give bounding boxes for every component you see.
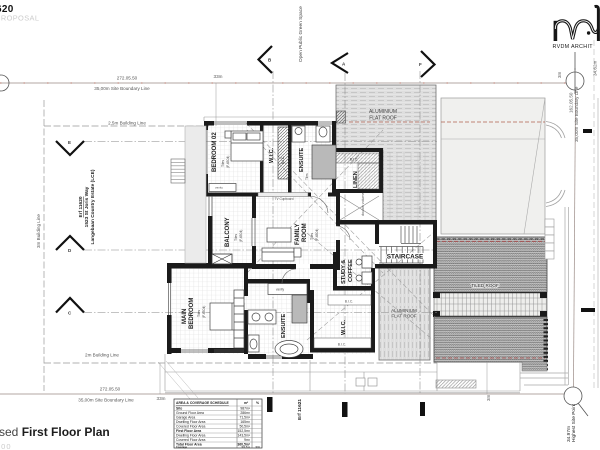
svg-text:Langebaan Country Estate (LCE): Langebaan Country Estate (LCE) xyxy=(90,169,96,244)
svg-text:71,5m²: 71,5m² xyxy=(239,416,250,420)
svg-text:50,5m²: 50,5m² xyxy=(239,425,250,429)
svg-text:Site: Site xyxy=(176,407,182,411)
svg-text:FLAT ROOF: FLAT ROOF xyxy=(369,116,397,122)
svg-text:35,00m Site Boundary Line: 35,00m Site Boundary Line xyxy=(574,86,579,142)
svg-text:360,5m²: 360,5m² xyxy=(241,446,250,449)
svg-text:STUDY &: STUDY & xyxy=(341,260,347,284)
svg-text:Covered Floor Area: Covered Floor Area xyxy=(176,438,206,442)
svg-text:Erf 11620: Erf 11620 xyxy=(78,196,84,217)
svg-text:Tiles: Tiles xyxy=(310,233,314,240)
svg-text:165m²: 165m² xyxy=(240,420,250,424)
svg-text:272.05.50: 272.05.50 xyxy=(117,76,138,81)
svg-text:Tiles: Tiles xyxy=(305,173,309,180)
svg-text:35,00m Site Boundary Line: 35,00m Site Boundary Line xyxy=(94,86,150,91)
svg-text:3m Building Line: 3m Building Line xyxy=(36,214,41,248)
svg-text:F: F xyxy=(419,62,422,67)
svg-text:B.I.C.: B.I.C. xyxy=(345,300,354,304)
svg-text:Tiles: Tiles xyxy=(221,160,225,167)
svg-text:FAMILY: FAMILY xyxy=(295,224,301,245)
svg-text:BEDROOM: BEDROOM xyxy=(189,298,195,329)
svg-text:3m: 3m xyxy=(557,71,562,78)
svg-text:B.I.C.: B.I.C. xyxy=(338,343,347,347)
svg-text:ROOM: ROOM xyxy=(302,223,308,242)
svg-text:(F.4504): (F.4504) xyxy=(315,229,319,241)
svg-text:1523 St Joris Way: 1523 St Joris Way xyxy=(84,186,90,227)
svg-text:Dwelling Floor Area: Dwelling Floor Area xyxy=(176,434,206,438)
svg-text:BALCONY: BALCONY xyxy=(225,217,231,247)
svg-text:9m²: 9m² xyxy=(244,438,251,442)
svg-text:FLAT ROOF: FLAT ROOF xyxy=(391,314,417,319)
svg-text:AREA & COVERAGE SCHEDULE: AREA & COVERAGE SCHEDULE xyxy=(176,401,230,405)
svg-text:COFFEE: COFFEE xyxy=(348,259,354,282)
svg-text:MAIN: MAIN xyxy=(182,309,188,324)
svg-text:E: E xyxy=(68,140,71,145)
svg-text:Erf 11621: Erf 11621 xyxy=(297,399,303,420)
svg-text:vanity: vanity xyxy=(215,186,223,190)
svg-text:33m: 33m xyxy=(157,396,166,401)
svg-text:B.I.C.: B.I.C. xyxy=(350,158,359,162)
svg-text:286m²: 286m² xyxy=(240,411,250,415)
svg-text:162.05.50: 162.05.50 xyxy=(569,92,574,113)
svg-text:Dwelling Floor Area: Dwelling Floor Area xyxy=(176,420,206,424)
svg-text:3m: 3m xyxy=(486,394,491,401)
svg-text:STAIRCASE: STAIRCASE xyxy=(387,254,424,261)
svg-text:Ground Floor Area: Ground Floor Area xyxy=(176,411,204,415)
svg-text:272.05.50: 272.05.50 xyxy=(100,387,121,392)
svg-text:33m: 33m xyxy=(214,74,223,79)
svg-text:TV Cupboard: TV Cupboard xyxy=(275,197,294,201)
svg-text:TILED ROOF: TILED ROOF xyxy=(471,283,499,288)
svg-text:double volume: double volume xyxy=(361,193,365,216)
svg-text:143,5m²: 143,5m² xyxy=(238,434,251,438)
svg-text:Open Public Green Space: Open Public Green Space xyxy=(298,6,304,62)
svg-text:ENSUITE: ENSUITE xyxy=(281,313,287,338)
svg-text:100: 100 xyxy=(0,442,12,450)
svg-text:W.I.C.: W.I.C. xyxy=(269,147,275,163)
svg-text:W.I.C.: W.I.C. xyxy=(341,319,347,335)
svg-text:PROPOSAL: PROPOSAL xyxy=(0,14,39,23)
svg-text:35,00m Site Boundary Line: 35,00m Site Boundary Line xyxy=(78,398,134,403)
svg-text:34.62m: 34.62m xyxy=(593,61,598,76)
svg-text:2m Building Line: 2m Building Line xyxy=(85,353,119,358)
svg-text:Tiles: Tiles xyxy=(197,310,201,317)
svg-text:Coverage: Coverage xyxy=(176,446,188,449)
svg-text:Highest Site Point: Highest Site Point xyxy=(571,403,577,442)
svg-text:ALUMINIUM: ALUMINIUM xyxy=(369,109,397,115)
svg-text:2,5m Building Line: 2,5m Building Line xyxy=(108,121,146,126)
svg-text:vanity: vanity xyxy=(276,288,285,292)
svg-text:ENSUITE: ENSUITE xyxy=(299,147,305,172)
svg-text:(F.4504): (F.4504) xyxy=(226,156,230,168)
svg-text:First Floor Area: First Floor Area xyxy=(176,429,201,433)
svg-text:LINEN: LINEN xyxy=(353,171,359,188)
svg-text:BEDROOM 02: BEDROOM 02 xyxy=(212,132,218,172)
svg-text:Tiles: Tiles xyxy=(234,234,238,241)
svg-text:(F.4504): (F.4504) xyxy=(202,306,206,318)
svg-text:152,5m²: 152,5m² xyxy=(238,429,251,433)
svg-text:987m²: 987m² xyxy=(240,407,250,411)
svg-text:RVDM ARCHIT: RVDM ARCHIT xyxy=(553,44,594,50)
svg-text:Covered Floor Area: Covered Floor Area xyxy=(176,425,206,429)
svg-text:Garage Area: Garage Area xyxy=(176,416,195,420)
svg-text:%: % xyxy=(256,401,259,405)
svg-text:sed First Floor Plan: sed First Floor Plan xyxy=(0,425,110,439)
svg-text:(F.4504): (F.4504) xyxy=(239,230,243,242)
svg-text:B.I.C.: B.I.C. xyxy=(281,156,285,165)
